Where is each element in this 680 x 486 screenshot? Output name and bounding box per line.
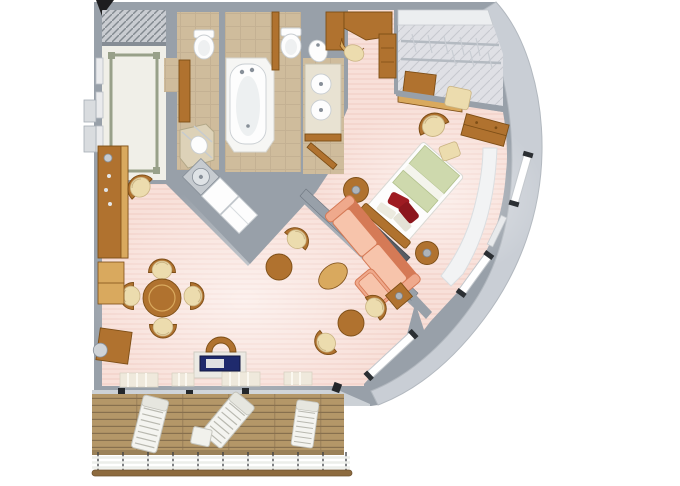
- side-table-round-1: [266, 254, 292, 280]
- deck-table: [190, 426, 212, 447]
- toilet-2: [281, 28, 301, 58]
- door-threshold-1: [120, 373, 158, 387]
- nightstand-right: [416, 242, 439, 265]
- foyer-entry-sill: [102, 42, 166, 46]
- veranda-railing: [92, 452, 352, 476]
- guest-bath-cabinet: [179, 60, 190, 122]
- side-table-round-2: [338, 310, 364, 336]
- floorplan-svg: [0, 0, 680, 486]
- double-sink-vanity: [305, 64, 341, 141]
- door-threshold-2: [172, 373, 194, 386]
- closet-shelf: [398, 10, 493, 25]
- door-threshold-4: [284, 372, 312, 385]
- floor-plan-figure: [0, 0, 680, 486]
- foyer-bath-door-opening: [164, 58, 179, 92]
- wardrobe-cabinet: [379, 34, 396, 78]
- door-threshold-3: [222, 372, 260, 386]
- sideboard-bar: [98, 146, 128, 258]
- railing-rails: [92, 458, 350, 468]
- toilet: [194, 30, 214, 59]
- veranda: [92, 391, 352, 476]
- foyer-entry-hatch: [102, 10, 166, 44]
- entry-door-exterior: [84, 100, 96, 152]
- wc-partition: [272, 12, 279, 70]
- deck-edge: [92, 450, 344, 455]
- foyer-closet-doors: [96, 58, 103, 152]
- bar-lamp: [104, 154, 112, 162]
- bidet-tap: [316, 43, 320, 47]
- railing-handrail: [92, 470, 352, 476]
- nightstand-lamp: [352, 186, 360, 194]
- nightstand-lamp-2: [423, 249, 431, 257]
